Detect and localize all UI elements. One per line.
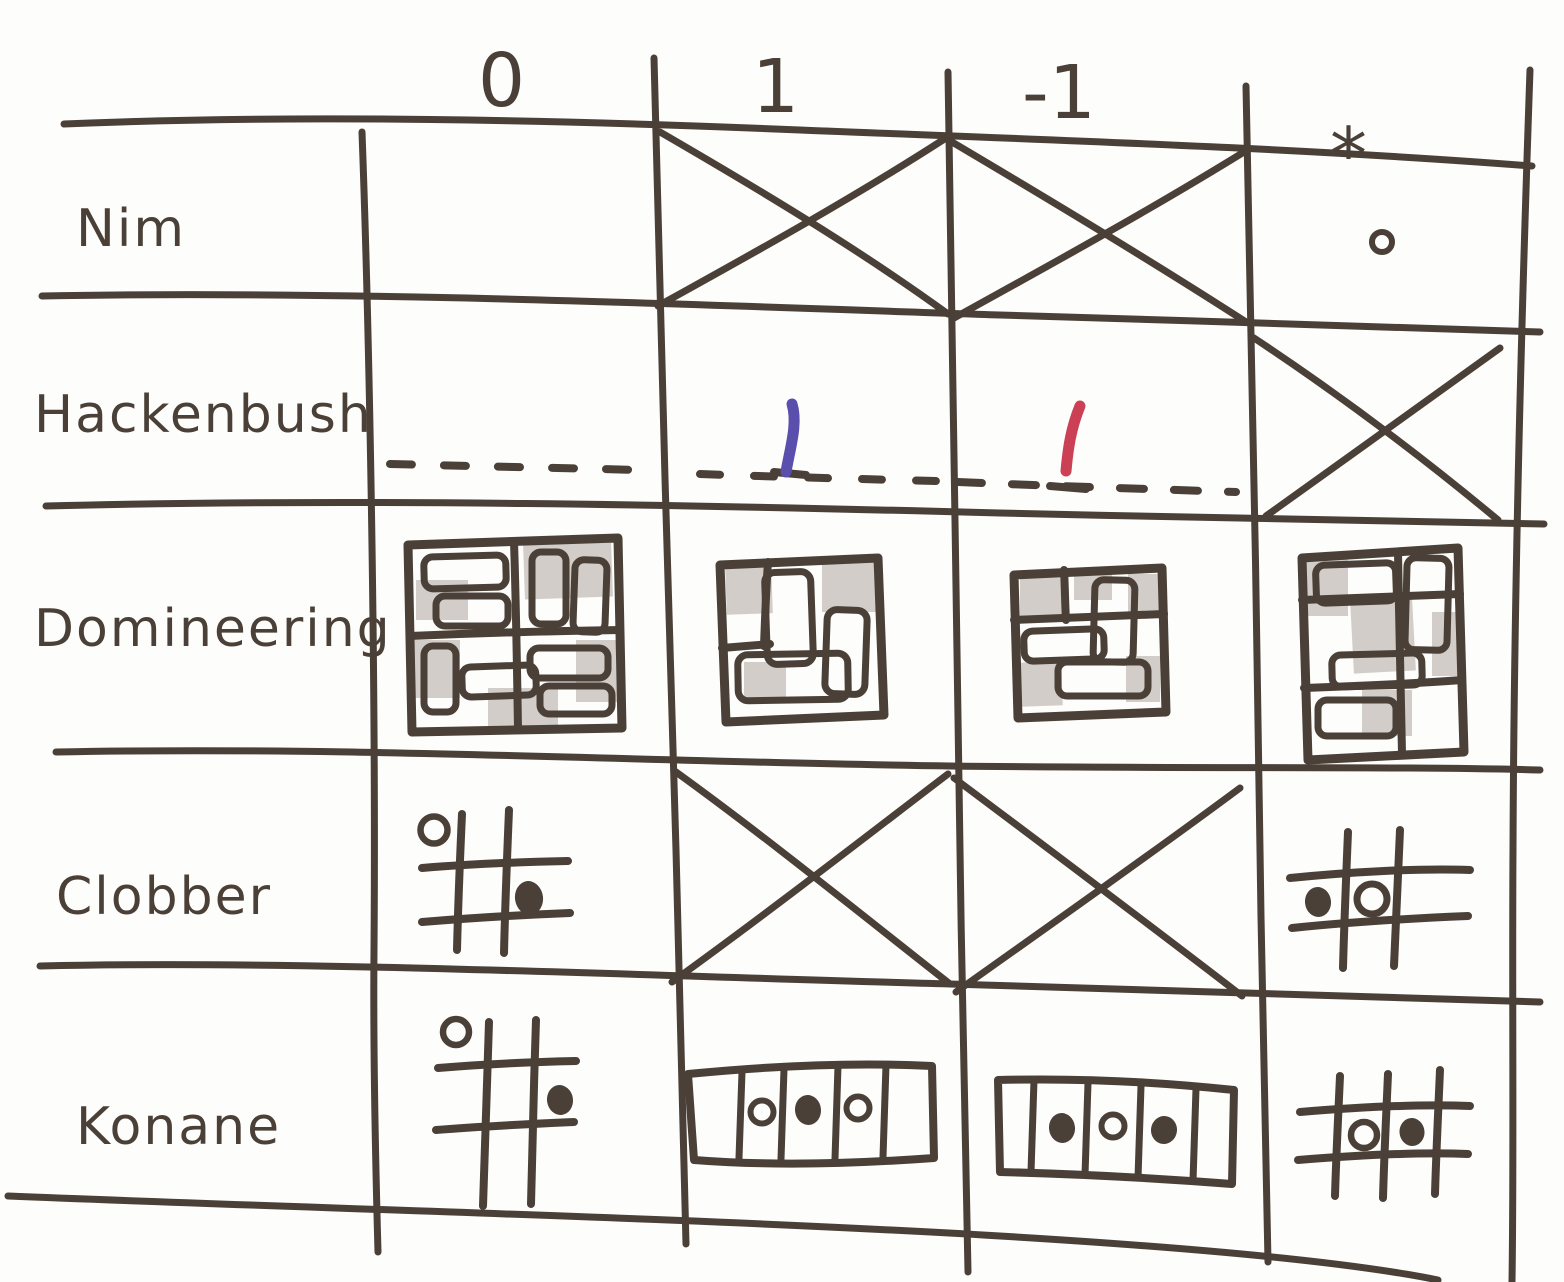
grid-stroke: [1383, 1074, 1388, 1198]
row-label-konane: Konane: [76, 1097, 281, 1157]
column-headers: 0 1 -1 *: [478, 38, 1367, 198]
grid-stroke: [483, 1022, 489, 1206]
black-stone: [794, 1094, 823, 1127]
white-stone: [1357, 884, 1387, 914]
table-drawing: 0 1 -1 * Nim Hackenbush Domineering Clob…: [0, 0, 1564, 1282]
grid-stroke: [457, 814, 462, 950]
grid-hline-bottom: [8, 1196, 1438, 1280]
pencil-shading: [1020, 576, 1062, 620]
cell-domineering-zero-board: [408, 538, 622, 732]
col-header-one: 1: [752, 44, 799, 130]
row-label-domineering: Domineering: [34, 599, 392, 659]
cell-clobber-star-grid: [1290, 830, 1470, 968]
grid-hline-clobber-bottom: [40, 965, 1540, 1002]
hand-drawn-game-value-table: 0 1 -1 * Nim Hackenbush Domineering Clob…: [0, 0, 1564, 1282]
strip-divider: [739, 1072, 742, 1158]
strip-divider: [1031, 1080, 1034, 1172]
cell-nim-one-cross: [658, 132, 948, 314]
grid-stroke: [436, 1122, 574, 1130]
red-edge: [1066, 406, 1080, 471]
strip-divider: [781, 1069, 784, 1159]
cell-nim-negone-cross: [952, 142, 1246, 322]
grid-vline-right: [1512, 70, 1530, 1282]
nim-stone: [1372, 232, 1392, 252]
black-stone: [1398, 1117, 1426, 1147]
blue-edge: [786, 404, 794, 472]
board-divider: [722, 644, 770, 648]
black-stone: [1304, 886, 1333, 919]
white-stone: [443, 1019, 469, 1045]
cell-clobber-zero-grid: [421, 810, 571, 953]
cell-hackenbush-ground: [390, 464, 1236, 492]
col-header-zero: 0: [478, 38, 525, 124]
grid-vline-zero-one: [654, 58, 686, 1244]
white-stone: [1351, 1122, 1377, 1148]
cell-domineering-one-board: [720, 558, 884, 722]
cell-nim-star-stone: [1372, 232, 1392, 252]
grid-stroke: [1335, 1076, 1340, 1196]
ground-dashes: [700, 474, 936, 481]
cell-hackenbush-star-cross: [1254, 338, 1500, 520]
cell-clobber-negone-cross: [954, 778, 1242, 996]
white-stone: [1102, 1115, 1125, 1138]
grid-stroke: [1290, 869, 1470, 878]
col-header-star: *: [1330, 112, 1367, 198]
ground-dashes: [390, 464, 640, 470]
black-stone: [1048, 1112, 1077, 1145]
cell-hackenbush-one: [774, 404, 806, 475]
white-stone: [847, 1097, 870, 1120]
cell-konane-star-grid: [1298, 1070, 1470, 1198]
grid-stroke: [1435, 1070, 1440, 1194]
black-stone: [1150, 1115, 1179, 1146]
grid-vline-negone-star: [1246, 86, 1268, 1262]
grid-stroke: [531, 1020, 536, 1204]
pencil-shading: [822, 562, 876, 612]
strip-divider: [1138, 1086, 1141, 1178]
strip-divider: [1193, 1089, 1196, 1181]
grid-vline-labels: [362, 132, 378, 1252]
board-divider: [1064, 570, 1066, 620]
grid-stroke: [1343, 832, 1348, 968]
ground-foot: [1050, 486, 1086, 489]
grid-hline-nim-bottom: [42, 295, 1540, 332]
row-label-hackenbush: Hackenbush: [34, 385, 373, 445]
cell-clobber-one-cross: [672, 772, 950, 984]
grid-stroke: [1292, 916, 1468, 928]
strip-divider: [883, 1065, 886, 1157]
col-header-neg-one: -1: [1022, 50, 1096, 136]
grid-stroke: [438, 1061, 576, 1068]
strip-divider: [1085, 1083, 1088, 1175]
cell-konane-negone-strip: [998, 1079, 1234, 1184]
cell-konane-zero-grid: [436, 1019, 576, 1206]
grid-stroke: [1394, 830, 1400, 966]
row-label-clobber: Clobber: [56, 867, 272, 927]
grid-stroke: [422, 861, 568, 868]
cell-hackenbush-negone: [1050, 406, 1086, 489]
row-label-nim: Nim: [76, 199, 186, 259]
cell-domineering-star-board: [1302, 548, 1464, 760]
cross-stroke: [1254, 338, 1498, 520]
grid-hline-hackenbush-bottom: [46, 502, 1544, 524]
grid-stroke: [422, 913, 570, 922]
white-stone: [751, 1101, 774, 1124]
white-stone: [421, 817, 448, 844]
strip-divider: [835, 1066, 838, 1159]
ground-dashes: [958, 482, 1236, 492]
grid-vline-one-negone: [948, 72, 968, 1272]
cell-domineering-negone-board: [1014, 568, 1166, 718]
cell-konane-one-strip: [688, 1064, 934, 1163]
row-labels: Nim Hackenbush Domineering Clobber Konan…: [34, 199, 392, 1157]
black-stone: [545, 1083, 575, 1116]
grid-stroke: [504, 810, 509, 953]
